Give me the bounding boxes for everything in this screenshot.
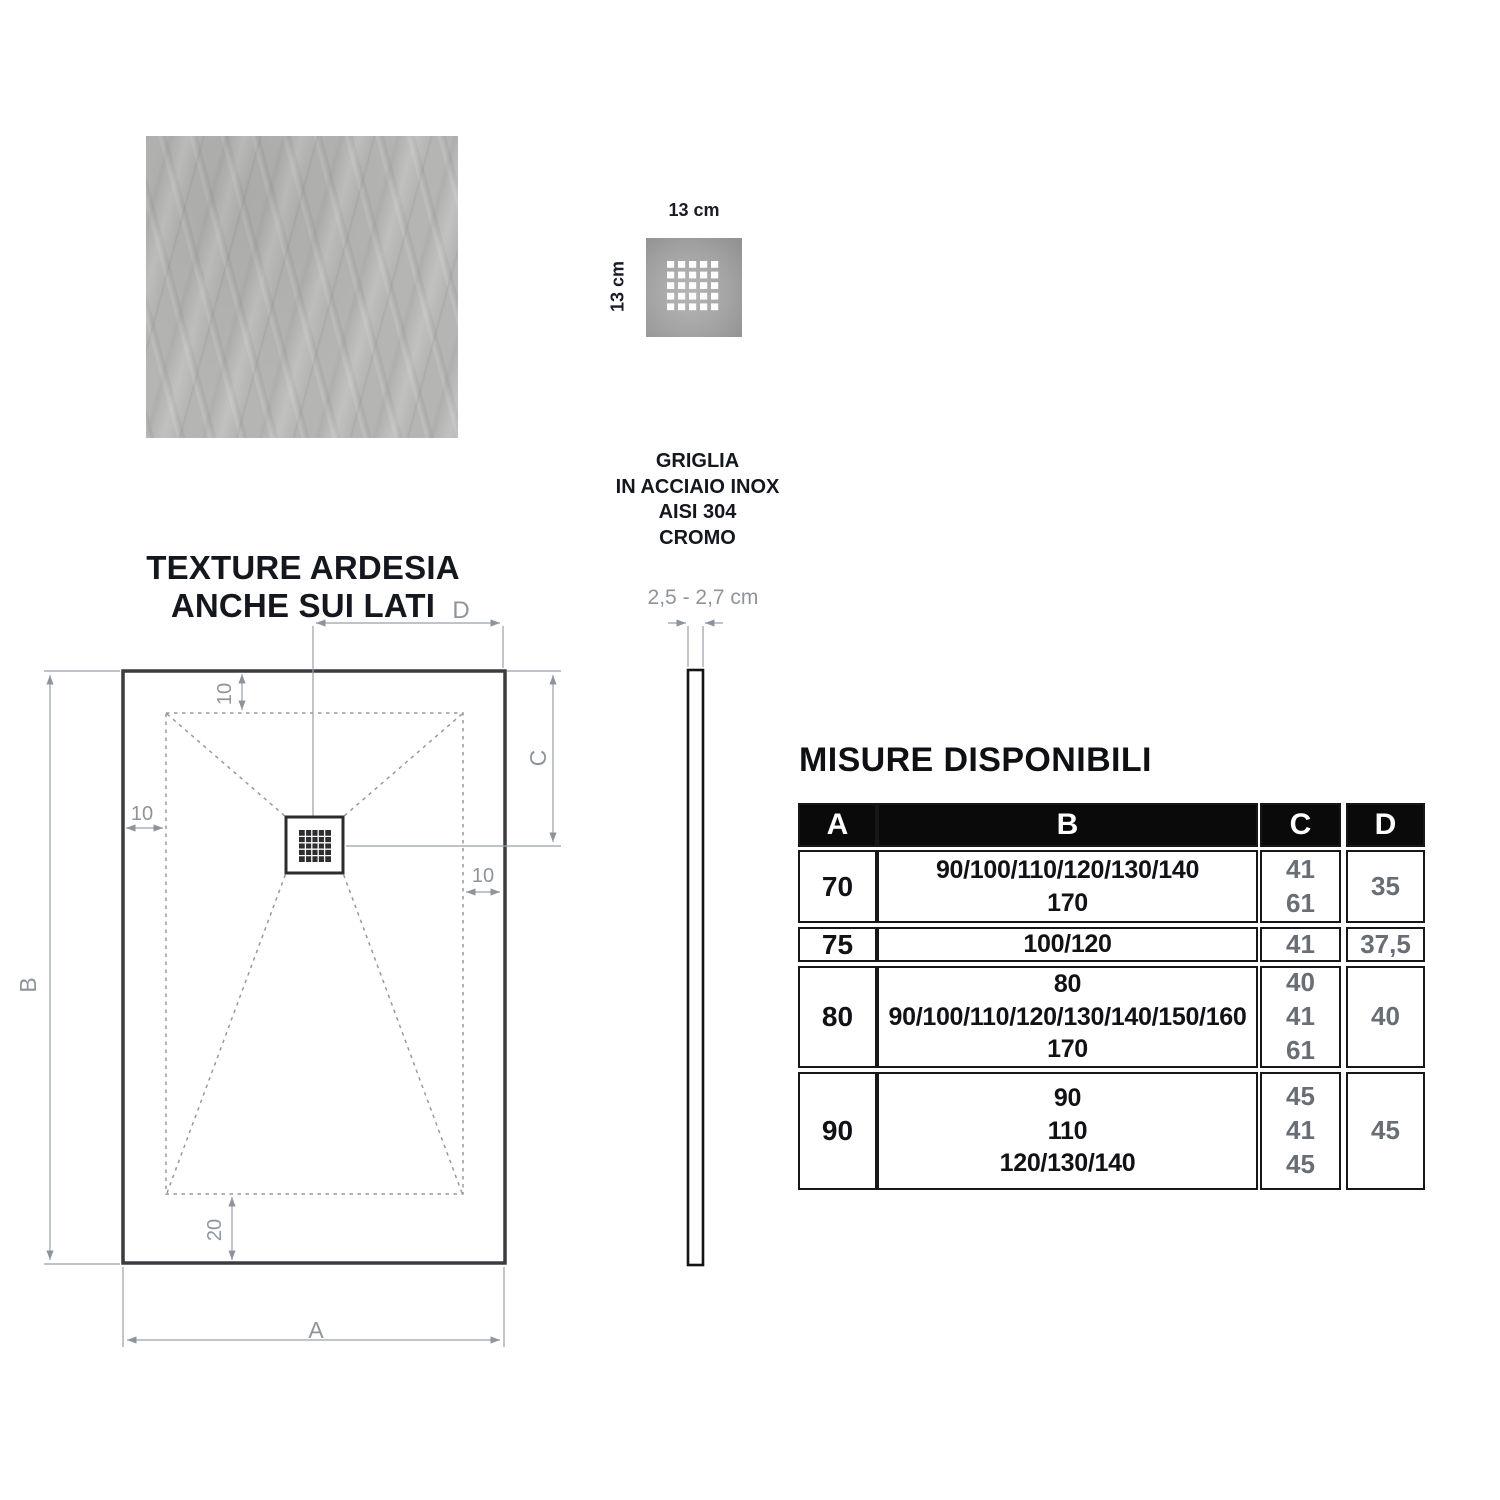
grille-height-dimension: 13 cm	[606, 255, 630, 317]
table-row3-c: 40 41 61	[1260, 966, 1341, 1068]
grille-width-dimension: 13 cm	[646, 200, 742, 221]
thickness-dimension-lines	[668, 623, 723, 667]
table-title: MISURE DISPONIBILI	[799, 741, 1152, 780]
dim-label-B: B	[15, 977, 41, 992]
dim-label-inset-bottom: 20	[204, 1219, 226, 1241]
table-row4-b: 90 110 120/130/140	[877, 1072, 1258, 1190]
table-header-A: A	[798, 803, 877, 847]
tray-outline	[123, 671, 505, 1263]
table-header-B: B	[877, 803, 1258, 847]
table-row4-d: 45	[1346, 1072, 1425, 1190]
dim-label-inset-left: 10	[131, 803, 153, 825]
table-row1-a: 70	[798, 850, 877, 923]
slate-texture-swatch	[146, 136, 458, 438]
table-row3-b: 80 90/100/110/120/130/140/150/160 170	[877, 966, 1258, 1068]
drain-grille-swatch	[646, 238, 742, 337]
plan-top-view-drawing: B A D C 10 10 10 20	[0, 560, 780, 1400]
drain-square	[286, 817, 343, 873]
dim-label-D: D	[452, 597, 469, 624]
size-table: A B C D 70 90/100/110/120/130/140 170 41…	[798, 803, 1425, 1190]
table-row2-b: 100/120	[877, 927, 1258, 962]
dim-label-inset-top: 10	[214, 683, 236, 705]
table-row3-a: 80	[798, 966, 877, 1068]
table-row1-c: 41 61	[1260, 850, 1341, 923]
dim-label-A: A	[308, 1317, 324, 1343]
table-row4-a: 90	[798, 1072, 877, 1190]
table-row1-d: 35	[1346, 850, 1425, 923]
table-row2-a: 75	[798, 927, 877, 962]
dim-label-inset-right: 10	[472, 865, 494, 887]
table-row4-c: 45 41 45	[1260, 1072, 1341, 1190]
table-row1-b: 90/100/110/120/130/140 170	[877, 850, 1258, 923]
table-row2-d: 37,5	[1346, 927, 1425, 962]
grille-holes-pattern	[646, 238, 742, 337]
table-header-C: C	[1260, 803, 1341, 847]
table-row2-c: 41	[1260, 927, 1341, 962]
table-row3-d: 40	[1346, 966, 1425, 1068]
table-header-D: D	[1346, 803, 1425, 847]
grille-material-caption: GRIGLIA IN ACCIAIO INOX AISI 304 CROMO	[590, 449, 805, 551]
side-profile	[668, 623, 723, 1265]
dim-label-C: C	[525, 750, 551, 767]
shower-tray-spec-sheet: TEXTURE ARDESIA ANCHE SUI LATI 13 cm 13 …	[0, 0, 1500, 1500]
